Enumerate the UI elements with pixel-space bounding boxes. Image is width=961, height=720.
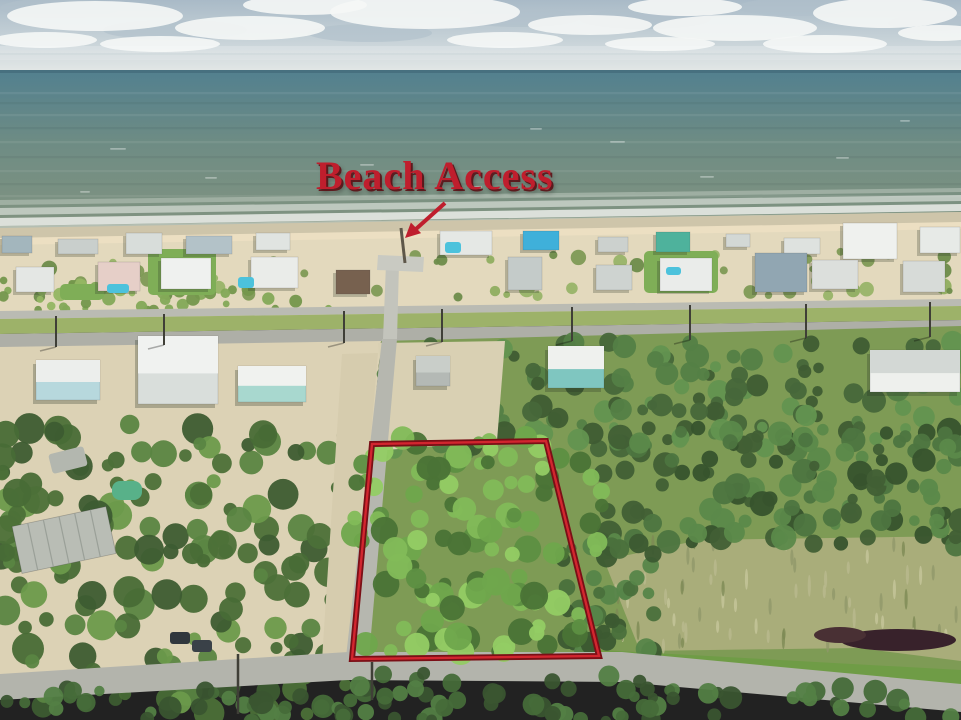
house (812, 260, 858, 289)
house (16, 267, 54, 292)
cloud (447, 32, 563, 48)
house (843, 223, 897, 259)
cloud (528, 15, 652, 35)
house-roof (548, 346, 604, 369)
cloud (175, 16, 325, 40)
backyard-pool (112, 481, 142, 500)
whitecap (700, 176, 714, 178)
house (903, 261, 945, 292)
parked-car (170, 632, 190, 644)
ocean-streak (0, 102, 961, 104)
whitecap (836, 157, 849, 159)
parked-car (192, 640, 212, 652)
whitecap (80, 191, 90, 193)
aerial-photo-scene (0, 0, 961, 720)
house (726, 234, 750, 247)
mud-patch (814, 627, 866, 643)
house (161, 258, 211, 289)
house (508, 257, 542, 290)
pool (445, 242, 461, 253)
beach-access-label: Beach Access (316, 156, 554, 196)
whitecap (610, 141, 625, 143)
ocean-streak (0, 92, 961, 94)
house (656, 232, 690, 252)
house (755, 253, 807, 292)
house (523, 231, 559, 250)
aerial-property-photo: Beach Access (0, 0, 961, 720)
cloud-band (0, 46, 961, 53)
house-roof (416, 356, 450, 373)
pool (238, 277, 254, 288)
cloud-band (0, 55, 961, 60)
house (256, 233, 290, 250)
house-roof (238, 366, 306, 386)
pool (666, 267, 681, 275)
whitecap (530, 128, 542, 130)
house-roof (36, 360, 100, 382)
house-roof (138, 336, 218, 373)
ocean-streak (0, 127, 961, 129)
house (920, 227, 960, 253)
house (598, 237, 628, 252)
whitecap (205, 177, 217, 179)
house (186, 236, 232, 254)
horizon-line (0, 70, 961, 73)
house (2, 236, 32, 253)
parking-pad (377, 255, 424, 272)
whitecap (110, 148, 126, 150)
ocean-streak (0, 141, 961, 143)
house (336, 270, 370, 294)
house (58, 239, 98, 254)
house (126, 233, 162, 254)
cloud (7, 1, 183, 31)
house (596, 265, 632, 290)
house (251, 257, 298, 288)
house-roof (870, 350, 960, 373)
pool (107, 284, 129, 293)
house (784, 238, 820, 254)
whitecap (900, 120, 910, 122)
ocean-streak (0, 114, 961, 116)
